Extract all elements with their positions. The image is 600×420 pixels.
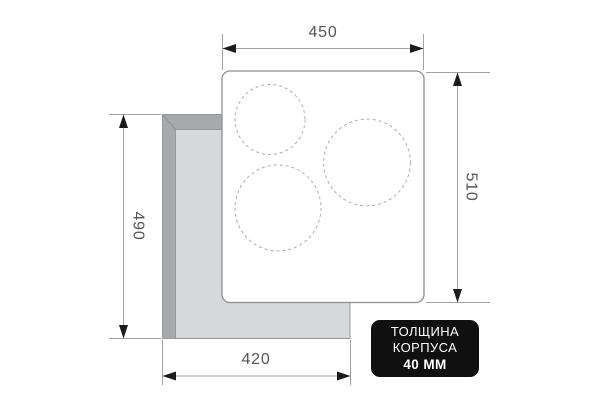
- badge-line-3: 40 ММ: [403, 357, 446, 373]
- arrow-up-icon: [453, 73, 462, 87]
- arrow-down-icon: [119, 325, 128, 339]
- arrow-left-icon: [163, 372, 177, 381]
- arrow-left-icon: [223, 44, 237, 53]
- dimension-bottom-width: 420: [163, 340, 351, 385]
- dimension-label-bottom: 420: [241, 351, 270, 368]
- dimension-top-width: 450: [223, 24, 424, 70]
- dimension-label-top: 450: [308, 24, 337, 41]
- dimension-right-height: 510: [426, 73, 490, 303]
- thickness-badge: ТОЛЩИНА КОРПУСА 40 ММ: [371, 320, 479, 377]
- cutout-dimension-diagram: 450 510 490 420: [0, 0, 600, 420]
- dimension-left-height: 490: [109, 115, 161, 339]
- arrow-up-icon: [119, 115, 128, 129]
- badge-line-2: КОРПУСА: [393, 340, 457, 356]
- arrow-right-icon: [337, 372, 351, 381]
- cooktop-panel: [222, 71, 424, 303]
- dimension-label-right: 510: [463, 172, 480, 201]
- diagram-canvas: 450 510 490 420: [0, 0, 600, 420]
- cooktop-panel-group: [222, 71, 424, 303]
- badge-line-1: ТОЛЩИНА: [391, 324, 459, 340]
- dimension-label-left: 490: [130, 211, 147, 240]
- arrow-right-icon: [410, 44, 424, 53]
- arrow-down-icon: [453, 289, 462, 303]
